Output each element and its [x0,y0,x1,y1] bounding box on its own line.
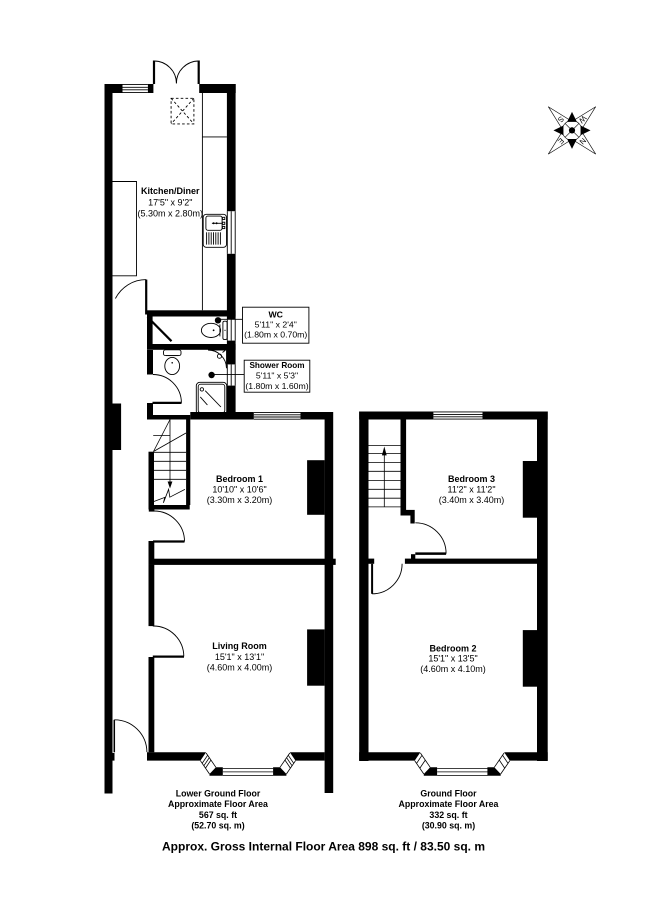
svg-text:Bedroom 1: Bedroom 1 [216,474,263,484]
svg-text:(4.60m x 4.10m): (4.60m x 4.10m) [420,664,486,674]
svg-text:Approx. Gross Internal Floor A: Approx. Gross Internal Floor Area 898 sq… [162,840,485,854]
svg-text:WC: WC [268,309,283,319]
svg-text:(30.90 sq. m): (30.90 sq. m) [422,821,475,831]
svg-text:332 sq. ft: 332 sq. ft [429,810,467,820]
svg-text:(3.40m x 3.40m): (3.40m x 3.40m) [439,495,505,505]
svg-text:Approximate Floor Area: Approximate Floor Area [168,799,268,809]
svg-text:17'5" x 9'2": 17'5" x 9'2" [148,197,192,207]
svg-text:Kitchen/Diner: Kitchen/Diner [141,186,200,196]
svg-text:(1.80m x 0.70m): (1.80m x 0.70m) [244,330,307,340]
svg-text:(4.60m x 4.00m): (4.60m x 4.00m) [207,663,273,673]
svg-text:567 sq. ft: 567 sq. ft [199,810,237,820]
svg-text:(5.30m x 2.80m): (5.30m x 2.80m) [138,208,204,218]
svg-text:10'10" x 10'6": 10'10" x 10'6" [212,484,266,494]
svg-text:Lower Ground Floor: Lower Ground Floor [176,789,261,799]
svg-text:11'2" x 11'2": 11'2" x 11'2" [447,484,495,494]
svg-text:5'11" x 2'4": 5'11" x 2'4" [255,320,297,330]
svg-text:(52.70 sq. m): (52.70 sq. m) [191,821,244,831]
svg-text:15'1" x 13'1": 15'1" x 13'1" [215,652,264,662]
svg-text:Shower Room: Shower Room [249,361,304,370]
svg-text:Ground Floor: Ground Floor [420,789,477,799]
svg-text:Living Room: Living Room [212,641,267,651]
svg-text:(1.80m x 1.60m): (1.80m x 1.60m) [245,381,308,391]
svg-text:5'11" x 5'3": 5'11" x 5'3" [256,371,298,381]
svg-text:Bedroom 2: Bedroom 2 [429,643,476,653]
svg-text:Approximate Floor Area: Approximate Floor Area [399,799,499,809]
svg-text:15'1" x 13'5": 15'1" x 13'5" [428,654,477,664]
svg-text:(3.30m x 3.20m): (3.30m x 3.20m) [207,495,273,505]
svg-text:Bedroom 3: Bedroom 3 [448,474,495,484]
